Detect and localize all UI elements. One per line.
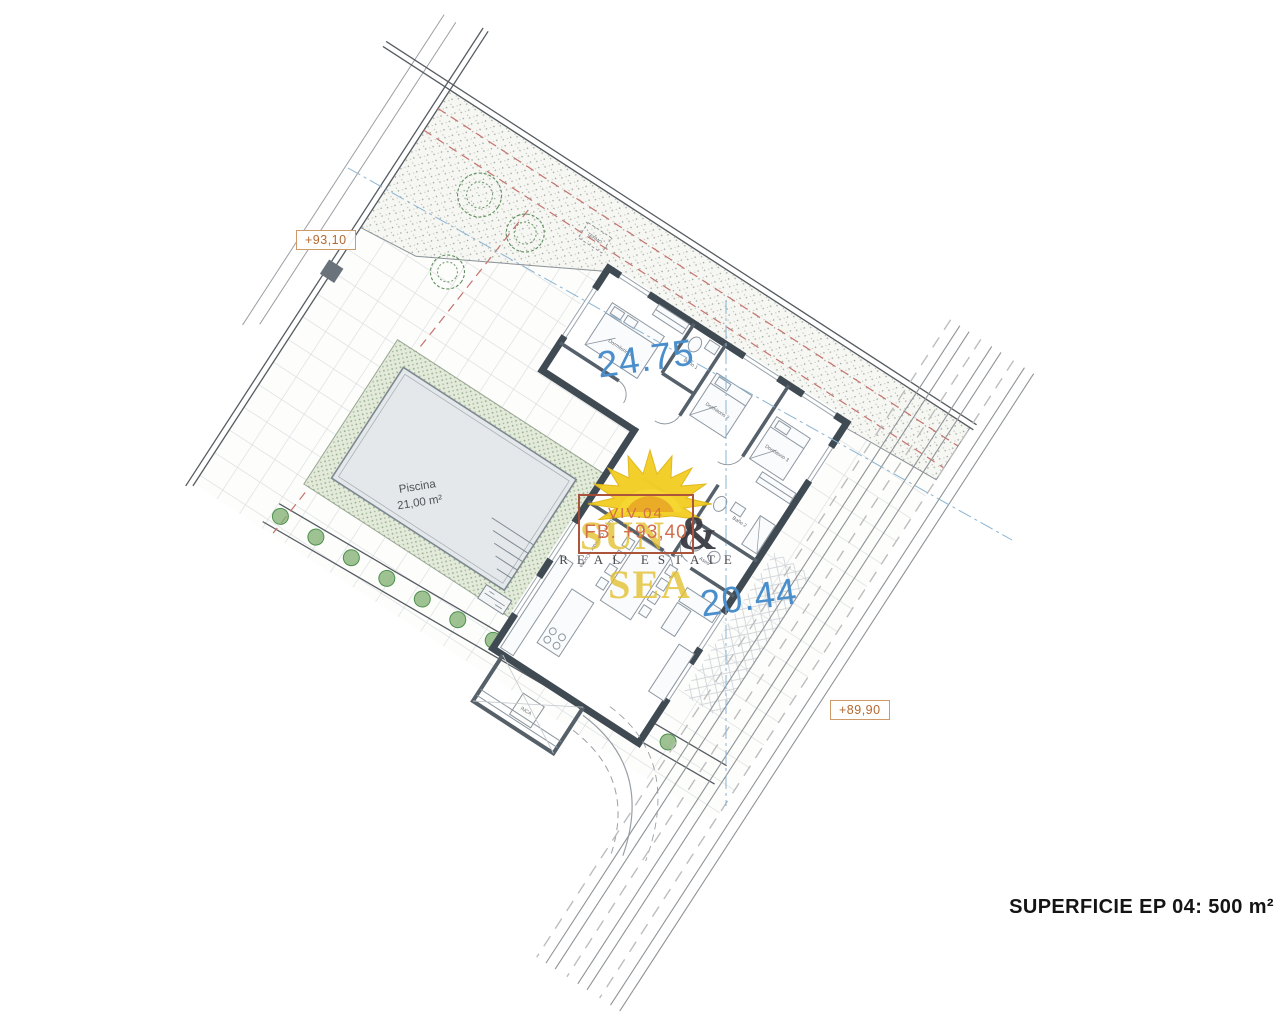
property-ref-box: VIV.04 FB. +93,40 <box>578 494 694 554</box>
elevation-marker-terrace: +93,10 <box>296 230 356 250</box>
rotated-plan-group: INCA TERMO <box>13 0 1034 1011</box>
floorplan-sheet: INCA TERMO <box>0 0 1280 1024</box>
floor-level: FB. +93,40 <box>584 522 687 544</box>
elevation-marker-street: +89,90 <box>830 700 890 720</box>
brand-sea: SEA <box>608 562 692 607</box>
property-ref: VIV.04 <box>608 505 664 522</box>
agency-watermark: SUN & SEA VIV.04 FB. +93,40 REAL ESTATE <box>535 448 765 570</box>
brand-tagline: REAL ESTATE <box>535 552 765 568</box>
superficie-label: SUPERFICIE EP 04: 500 m² <box>1009 896 1274 919</box>
